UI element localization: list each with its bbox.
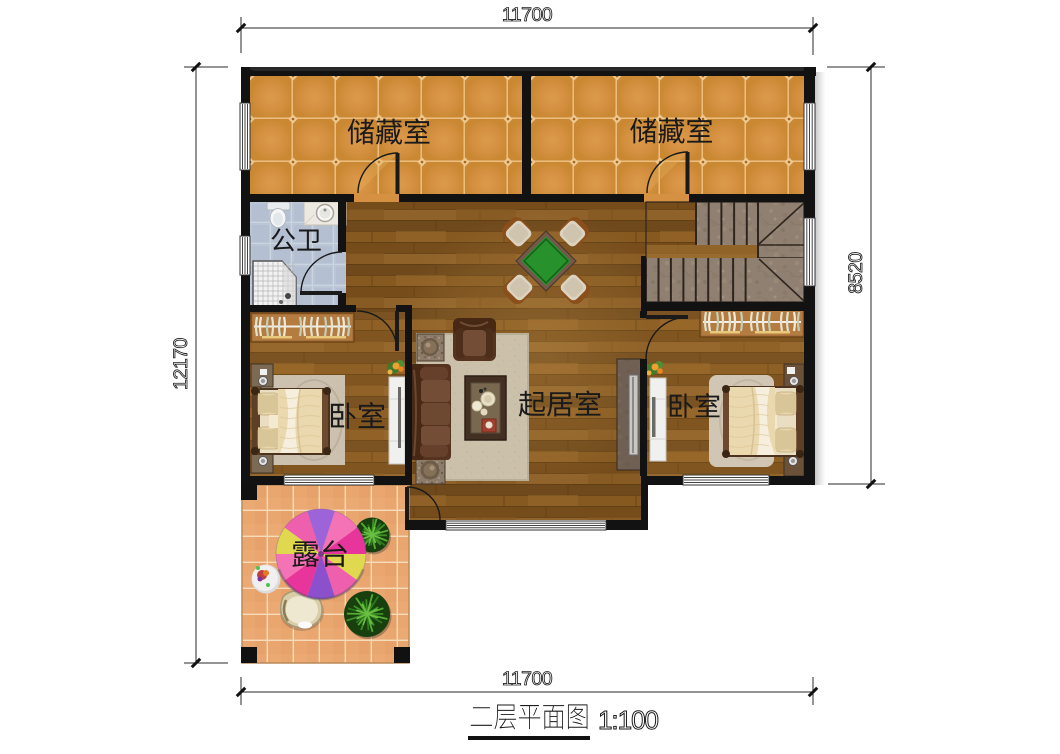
svg-text:1:100: 1:100 [598,705,659,735]
svg-text:12170: 12170 [170,337,192,389]
svg-text:11700: 11700 [502,4,553,26]
svg-text:8520: 8520 [845,252,867,294]
svg-text:11700: 11700 [502,668,553,690]
